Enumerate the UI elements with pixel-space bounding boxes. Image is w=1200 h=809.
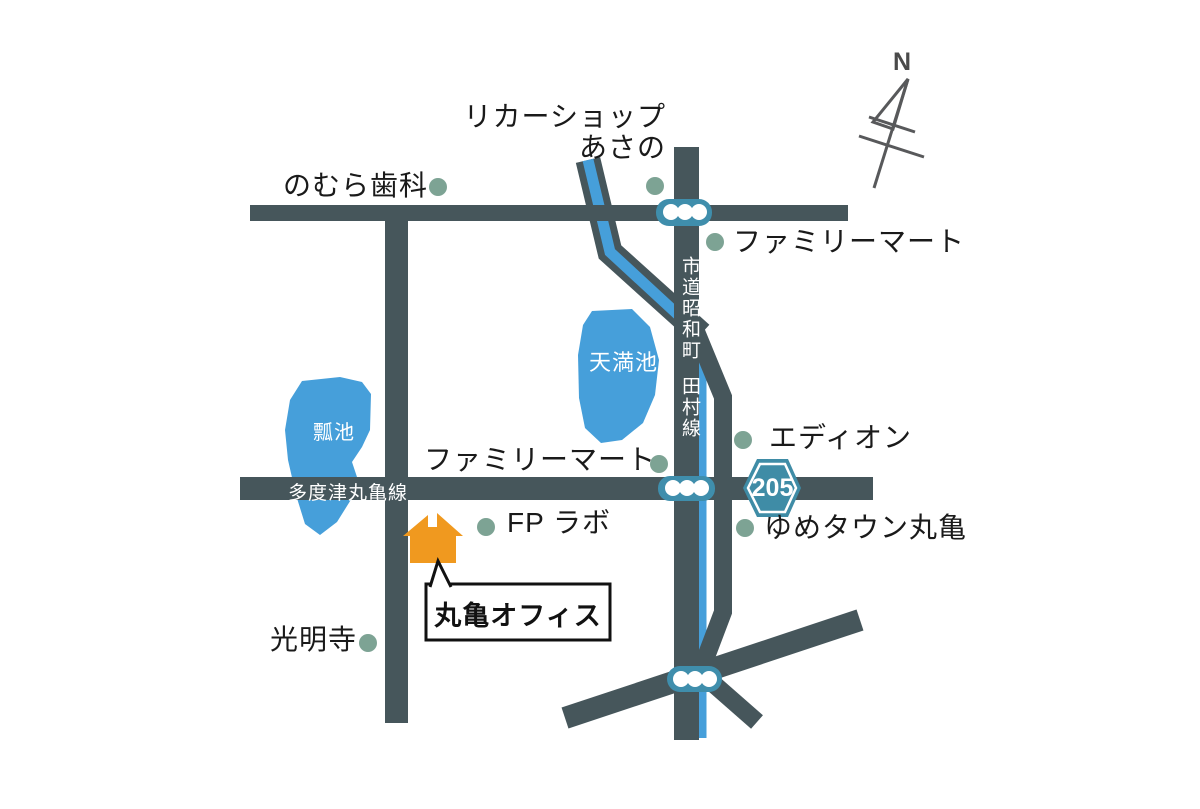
label-north: N [893, 48, 911, 77]
label-road-tadotsu-marugame: 多度津丸亀線 [288, 478, 408, 505]
label-edion: エディオン [769, 423, 912, 454]
label-familymart-central: ファミリーマート [424, 445, 656, 476]
traffic-light-central [658, 476, 715, 501]
road-left-vertical [385, 205, 408, 723]
traffic-light-south [667, 666, 722, 692]
label-komyoji-temple: 光明寺 [270, 625, 357, 656]
road-top-horizontal [250, 205, 848, 221]
label-liquor-shop-line2: あさの [0, 133, 666, 164]
traffic-light-north [656, 199, 712, 226]
label-pond-tenma: 天満池 [589, 345, 658, 377]
label-nomura-dental: のむら歯科 [283, 171, 428, 202]
pond-hisago-shape [285, 377, 371, 535]
office-building-icon [403, 513, 463, 563]
road-showacho-tamura [674, 147, 699, 740]
label-liquor-shop-line1: リカーショップ [0, 102, 666, 133]
label-road-shido-showacho: 市道昭和町 [676, 256, 703, 361]
map-canvas: リカーショップ あさの のむら歯科 ファミリーマート エディオン ファミリーマー… [0, 0, 1200, 809]
marker-edion [734, 431, 752, 449]
marker-familymart-north [706, 233, 724, 251]
label-familymart-north: ファミリーマート [733, 227, 965, 258]
label-yumetown-marugame: ゆめタウン丸亀 [764, 513, 967, 544]
label-road-tamura-line: 田村線 [676, 376, 703, 439]
marker-komyoji [359, 634, 377, 652]
marker-nomura-dental [429, 178, 447, 196]
label-liquor-shop-asano: リカーショップ あさの [0, 102, 666, 164]
marker-fp-lab [477, 518, 495, 536]
north-compass-icon [859, 79, 924, 188]
label-pond-hisago: 瓢池 [313, 416, 355, 445]
label-route-205: 205 [744, 474, 801, 503]
marker-liquor-shop [646, 177, 664, 195]
label-marugame-office: 丸亀オフィス [427, 594, 609, 633]
label-fp-lab: FP ラボ [507, 508, 611, 539]
marker-yumetown [736, 519, 754, 537]
